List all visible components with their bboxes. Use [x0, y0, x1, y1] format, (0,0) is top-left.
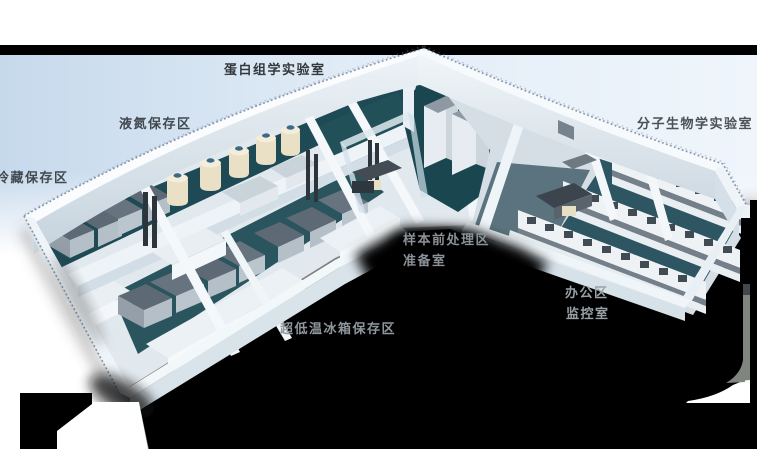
svg-text:分子生物学实验室: 分子生物学实验室 [637, 116, 753, 131]
svg-text:冷藏保存区: 冷藏保存区 [0, 170, 69, 185]
svg-text:监控室: 监控室 [566, 306, 610, 321]
svg-text:液氮保存区: 液氮保存区 [119, 116, 192, 131]
svg-text:准备室: 准备室 [403, 253, 447, 268]
svg-text:样本前处理区: 样本前处理区 [403, 232, 490, 247]
svg-text:办公区: 办公区 [565, 285, 609, 300]
svg-text:超低温冰箱保存区: 超低温冰箱保存区 [280, 321, 396, 336]
svg-text:蛋白组学实验室: 蛋白组学实验室 [224, 62, 326, 77]
